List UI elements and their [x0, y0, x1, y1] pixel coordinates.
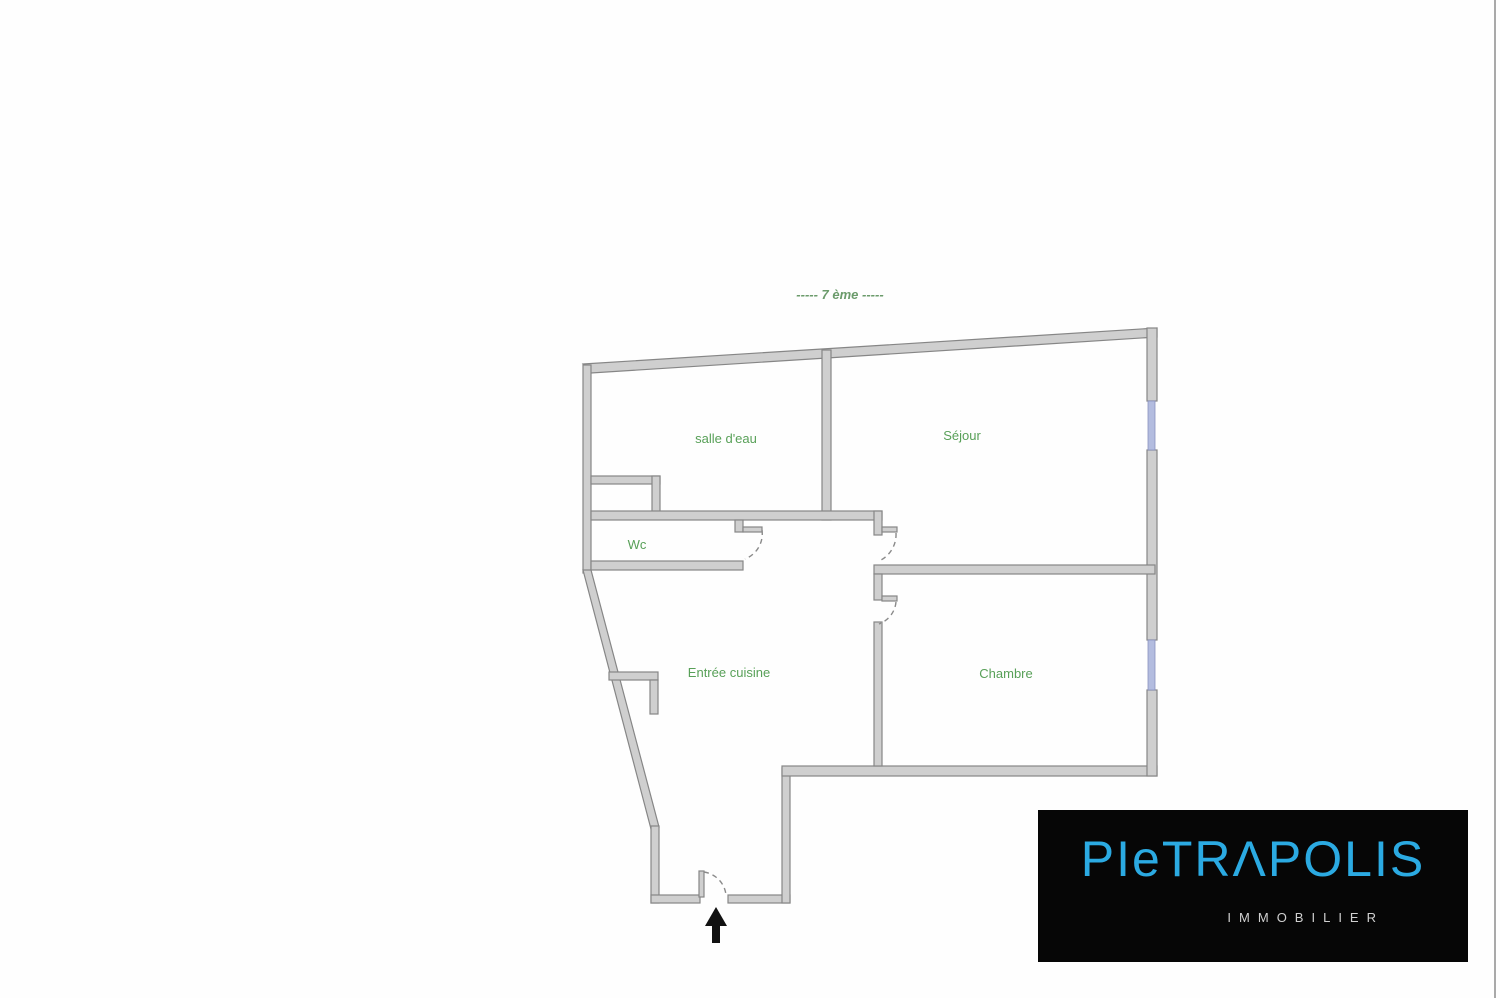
- room-label-salle-deau: salle d'eau: [695, 431, 757, 446]
- room-label-entree-cuisine: Entrée cuisine: [688, 665, 770, 680]
- chambre-door-arc: [879, 602, 896, 624]
- room-label-chambre: Chambre: [979, 666, 1032, 681]
- wall-right-lower: [1147, 690, 1157, 776]
- wc-door-leaf: [743, 527, 762, 532]
- sejour-window: [1148, 401, 1155, 450]
- agency-logo: PIeTRΛPOLIS IMMOBILIER: [1038, 810, 1468, 962]
- wall-wc-door-stub: [735, 520, 743, 532]
- wc-door-arc: [745, 530, 762, 559]
- entrance-door-leaf: [699, 871, 704, 897]
- wall-left: [583, 365, 591, 573]
- page-edge-line: [1494, 0, 1496, 998]
- wall-vestibule-left: [651, 826, 659, 903]
- chambre-door-leaf: [882, 596, 897, 601]
- wall-bottom: [782, 766, 1157, 776]
- wall-wc-bottom: [591, 561, 743, 570]
- entrance-arrow-icon: [705, 907, 727, 943]
- wall-closet-top: [591, 476, 660, 484]
- chambre-window: [1148, 640, 1155, 690]
- agency-logo-subtitle-text: IMMOBILIER: [1227, 910, 1384, 925]
- page: ----- 7 ème ----- salle d'eau Séjour Wc …: [0, 0, 1500, 998]
- sejour-door-arc: [879, 533, 896, 561]
- wall-vestibule-bottom-left: [651, 895, 700, 903]
- room-label-sejour: Séjour: [943, 428, 981, 443]
- wall-kitchen-stub-vertical: [650, 680, 658, 714]
- wall-right-middle: [1147, 450, 1157, 640]
- wall-hall-middle: [874, 574, 882, 600]
- room-label-wc: Wc: [628, 537, 647, 552]
- wall-diagonal-left: [583, 570, 659, 829]
- floor-title: ----- 7 ème -----: [796, 287, 883, 302]
- wall-kitchen-stub-horizontal: [609, 672, 658, 680]
- entrance-door-arc: [704, 872, 726, 895]
- wall-vestibule-right: [782, 768, 790, 903]
- wall-vestibule-bottom-right: [728, 895, 790, 903]
- wall-sejour-chambre-divider: [874, 565, 1155, 574]
- door-arcs: [704, 530, 896, 895]
- wall-salledeau-sejour-divider: [822, 350, 831, 520]
- agency-logo-brand-text: PIeTRΛPOLIS: [1038, 830, 1468, 888]
- wall-right-upper: [1147, 328, 1157, 401]
- wall-salledeau-bottom: [591, 511, 882, 520]
- sejour-door-leaf: [882, 527, 897, 532]
- wall-hall-lower: [874, 622, 882, 766]
- wall-hall-upper: [874, 511, 882, 535]
- wall-top: [583, 328, 1157, 373]
